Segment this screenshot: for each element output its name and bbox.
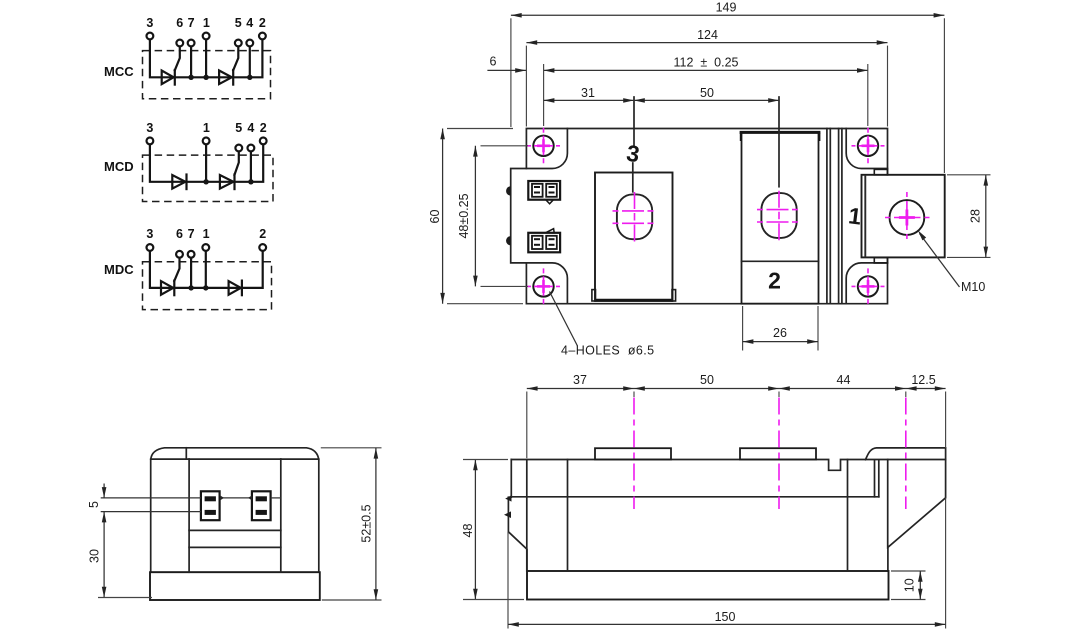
svg-text:37: 37 — [573, 373, 587, 387]
svg-text:4: 4 — [246, 16, 253, 30]
svg-text:6: 6 — [176, 16, 183, 30]
svg-text:6: 6 — [490, 55, 497, 69]
svg-text:28: 28 — [969, 209, 983, 223]
svg-text:MCD: MCD — [104, 159, 134, 174]
svg-text:48: 48 — [461, 524, 475, 538]
svg-text:1: 1 — [203, 121, 210, 135]
svg-text:1: 1 — [203, 16, 210, 30]
svg-text:7: 7 — [188, 227, 195, 241]
svg-text:M10: M10 — [961, 280, 985, 294]
svg-text:5: 5 — [235, 16, 242, 30]
svg-text:26: 26 — [773, 326, 787, 340]
svg-text:112 ± 0.25: 112 ± 0.25 — [673, 56, 738, 70]
svg-text:150: 150 — [715, 610, 736, 624]
svg-text:MCC: MCC — [104, 64, 134, 79]
svg-text:6: 6 — [176, 227, 183, 241]
svg-text:4–HOLES ø6.5: 4–HOLES ø6.5 — [561, 344, 654, 358]
svg-text:2: 2 — [259, 16, 266, 30]
svg-text:2: 2 — [260, 121, 267, 135]
svg-text:4: 4 — [247, 121, 254, 135]
svg-text:60: 60 — [428, 210, 442, 224]
svg-text:50: 50 — [700, 373, 714, 387]
svg-text:2: 2 — [768, 268, 781, 294]
svg-text:149: 149 — [716, 1, 737, 15]
svg-text:MDC: MDC — [104, 262, 134, 277]
svg-text:52±0.5: 52±0.5 — [359, 504, 373, 542]
svg-text:48±0.25: 48±0.25 — [457, 193, 471, 238]
svg-text:3: 3 — [146, 227, 153, 241]
svg-text:1: 1 — [203, 227, 210, 241]
svg-text:31: 31 — [581, 86, 595, 100]
svg-text:7: 7 — [188, 16, 195, 30]
svg-text:3: 3 — [146, 16, 153, 30]
svg-text:30: 30 — [88, 549, 102, 563]
svg-text:10: 10 — [903, 578, 917, 592]
svg-text:50: 50 — [700, 86, 714, 100]
svg-text:2: 2 — [259, 227, 266, 241]
svg-text:5: 5 — [235, 121, 242, 135]
svg-text:124: 124 — [697, 28, 718, 42]
svg-text:12.5: 12.5 — [911, 373, 935, 387]
svg-text:5: 5 — [87, 501, 101, 508]
svg-text:44: 44 — [837, 373, 851, 387]
svg-text:3: 3 — [146, 121, 153, 135]
